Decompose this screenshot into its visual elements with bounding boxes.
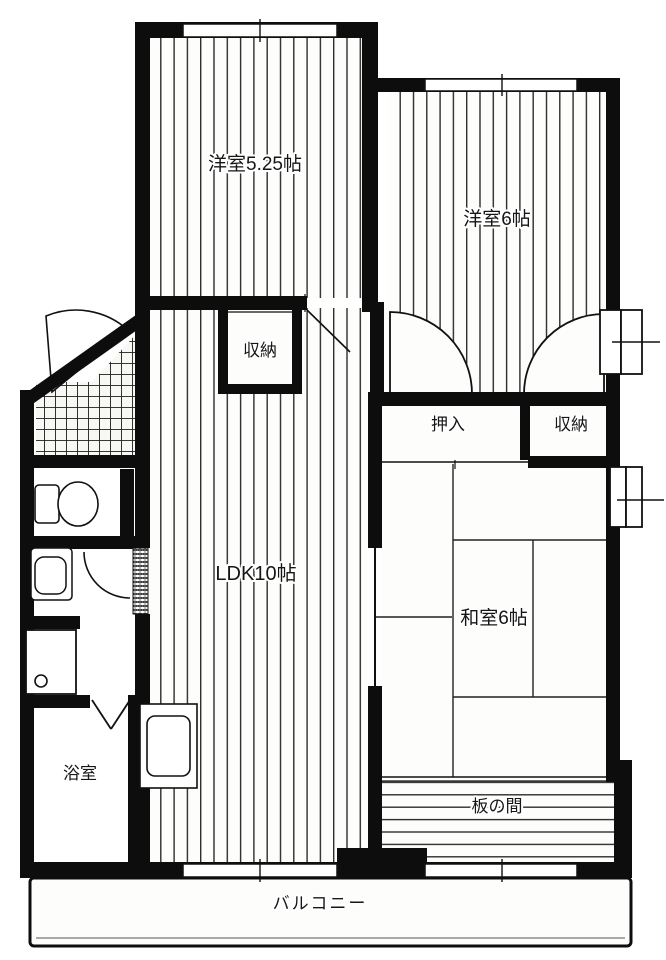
washbasin-icon (31, 548, 72, 600)
label-itanoma: 板の間 (472, 797, 523, 816)
floorplan-image: 洋室5.25帖 洋室6帖 収納 押入 収納 LDK10帖 和室6帖 板の間 浴室… (0, 0, 666, 960)
washing-machine-pan-icon (26, 630, 76, 694)
label-closet-top: 収納 (243, 341, 277, 360)
toilet-icon (35, 482, 98, 526)
label-western-525: 洋室5.25帖 (208, 153, 302, 175)
label-oshiire: 押入 (431, 415, 465, 434)
label-washitsu: 和室6帖 (460, 607, 528, 629)
label-closet-right: 収納 (554, 415, 588, 434)
floorplan-svg: 洋室5.25帖 洋室6帖 収納 押入 収納 LDK10帖 和室6帖 板の間 浴室… (0, 0, 666, 960)
label-ldk: LDK10帖 (215, 562, 296, 585)
label-western-6: 洋室6帖 (463, 208, 531, 230)
label-bathroom: 浴室 (63, 764, 97, 783)
kitchen-sink-icon (140, 704, 197, 788)
label-balcony: バルコニー (273, 894, 368, 913)
accordion-door-icon (133, 548, 148, 614)
